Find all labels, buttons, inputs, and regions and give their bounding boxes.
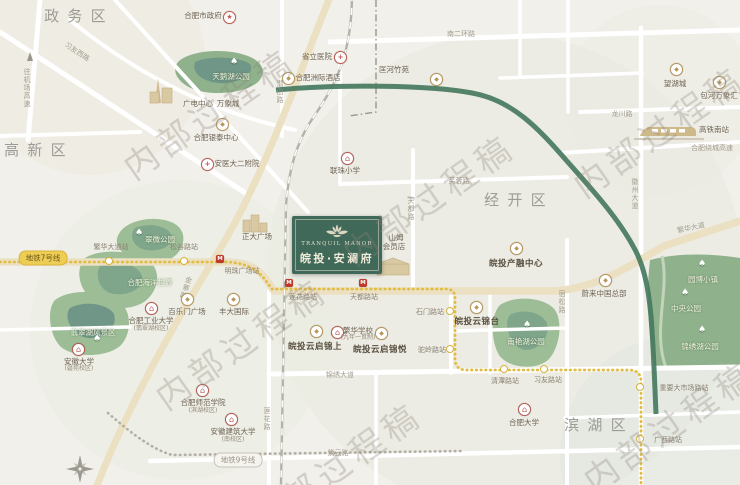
poi-label: 丰大国际 xyxy=(219,308,249,317)
poi-sub-label: (翡翠湖校区) xyxy=(134,326,169,333)
tree-icon: ♠ xyxy=(698,259,706,269)
mall-icon: ◆ xyxy=(713,76,726,89)
road-label: 天都路 xyxy=(407,197,415,221)
station-label: 繁华大道站 xyxy=(94,243,129,251)
road-label: 锦绣大道 xyxy=(326,371,354,379)
station-label: 驼岭路站 xyxy=(418,346,446,354)
school-icon: ⌂ xyxy=(145,302,158,315)
poi-label: 合肥银泰中心 xyxy=(194,134,239,143)
poi-label: 皖投云锦台 xyxy=(454,318,499,328)
mall-icon: ◆ xyxy=(599,274,612,287)
metro-entrance-icon: M xyxy=(285,279,293,287)
poi-sub-label: (九年一贯制) xyxy=(341,335,376,342)
park-label: 南艳湖公园 xyxy=(507,338,545,347)
tree-icon: ♠ xyxy=(681,288,689,298)
mall-icon: ◆ xyxy=(510,242,523,255)
poi-label: 皖投云启锦上 xyxy=(288,343,342,353)
hospital-icon: + xyxy=(334,51,347,64)
mall-icon: ◆ xyxy=(310,325,323,338)
station-label: 清潭路站 xyxy=(491,377,519,385)
metro-entrance-icon: M xyxy=(359,279,367,287)
poi-sub-label: (磬苑校区) xyxy=(65,366,94,373)
hospital-icon: + xyxy=(201,158,214,171)
poi-label: 正大广场 xyxy=(242,233,272,242)
tree-icon: ♠ xyxy=(93,334,101,344)
poi-label: 高铁南站 xyxy=(699,126,729,135)
poi-label: 省立医院 xyxy=(302,53,332,62)
hotel-icon: ◆ xyxy=(282,72,295,85)
road-label: 芙蓉路 xyxy=(449,177,470,185)
poi-label: 万象城 xyxy=(217,100,240,109)
station-label: 明珠广场站 xyxy=(225,267,260,275)
road-label: 龙川路 xyxy=(612,110,633,118)
airport-direction-arrow xyxy=(27,52,33,61)
poi-label: 皖投产融中心 xyxy=(489,260,543,270)
park-label: 园博小镇 xyxy=(688,276,718,285)
poi-label: 合肥大学 xyxy=(509,419,539,428)
district-label: 经开区 xyxy=(484,192,554,209)
mall-icon: ◆ xyxy=(227,293,240,306)
mall-icon: ◆ xyxy=(181,293,194,306)
poi-label: 包河万象汇 xyxy=(700,92,738,101)
school-icon: ⌂ xyxy=(72,343,85,356)
poi-sub-label: (南校区) xyxy=(222,437,245,444)
poi-label: 望湖城 xyxy=(664,80,687,89)
road-label: 合肥绕城高速 xyxy=(691,144,733,152)
project-name-cn: 皖投·安澜府 xyxy=(300,250,374,266)
park-label: 天鹅湖公园 xyxy=(212,73,250,82)
park-label: 中央公园 xyxy=(671,305,701,314)
station-label: 广西路站 xyxy=(654,436,682,444)
park-label: 锦绣湖公园 xyxy=(681,343,719,352)
mall-icon: ◆ xyxy=(216,118,229,131)
gov-icon: ★ xyxy=(223,11,236,24)
mall-icon: ◆ xyxy=(430,73,443,86)
school-icon: ⌂ xyxy=(196,384,209,397)
poi-label: 安医大二附院 xyxy=(215,160,260,169)
station-label: 天都路站 xyxy=(350,293,378,301)
station-label: 石门路站 xyxy=(416,308,444,316)
mall-icon: ◆ xyxy=(470,301,483,314)
road-label: 紫云路 xyxy=(328,449,349,457)
poi-label: 皖投云启锦悦 xyxy=(353,346,407,356)
tree-icon: ♠ xyxy=(135,228,143,238)
metro-line9-badge: 地铁9号线 xyxy=(214,453,263,468)
location-map: TRANQUIL MANOR 皖投·安澜府 内部过程稿内部过程稿内部过程稿内部过… xyxy=(0,0,740,485)
mall-icon: ◆ xyxy=(670,63,683,76)
poi-label: 合肥洲际酒店 xyxy=(296,74,341,83)
road-label: 往机场高速 xyxy=(23,68,31,108)
station-label: 松谷路站 xyxy=(170,243,198,251)
road-label: 徽州大道 xyxy=(631,178,639,210)
poi-label: 合肥市政府 xyxy=(184,12,222,21)
compass-rose xyxy=(66,455,94,483)
poi-label: 蔚来中国总部 xyxy=(582,290,627,299)
district-label: 滨湖区 xyxy=(564,417,634,434)
district-label: 高新区 xyxy=(4,142,74,159)
school-icon: ⌂ xyxy=(518,403,531,416)
road-label: 南二环路 xyxy=(447,30,475,38)
school-icon: ⌂ xyxy=(225,413,238,426)
tree-icon: ♠ xyxy=(230,57,238,67)
project-logo-card: TRANQUIL MANOR 皖投·安澜府 xyxy=(292,216,382,274)
station-label: 习友路站 xyxy=(534,376,562,384)
metro-line7-badge: 地铁7号线 xyxy=(19,251,68,266)
poi-label: 广电中心 xyxy=(183,100,213,109)
park-label: 合肥海洋世界 xyxy=(128,279,173,288)
station-label: 重要大市场路站 xyxy=(660,384,709,392)
poi-sub-label: (滨湖校区) xyxy=(189,408,218,415)
road-label: 宿松路 xyxy=(558,290,566,314)
poi-label: 联珠小学 xyxy=(330,167,360,176)
project-emblem-icon xyxy=(324,224,350,239)
station-label: 莲花路站 xyxy=(289,293,317,301)
metro-entrance-icon: M xyxy=(216,255,224,263)
road-label: 莲花路 xyxy=(263,407,271,431)
school-icon: ⌂ xyxy=(341,152,354,165)
tree-icon: ♠ xyxy=(698,325,706,335)
project-name-en: TRANQUIL MANOR xyxy=(301,241,372,247)
district-label: 政务区 xyxy=(44,8,114,25)
poi-label: 匡河竹苑 xyxy=(379,66,409,75)
mall-icon: ◆ xyxy=(375,327,388,340)
poi-label: 百乐门广场 xyxy=(168,308,206,317)
tree-icon: ♠ xyxy=(523,320,531,330)
road-label: 潜山路 xyxy=(276,80,284,104)
poi-label: 会员店 xyxy=(383,243,406,252)
